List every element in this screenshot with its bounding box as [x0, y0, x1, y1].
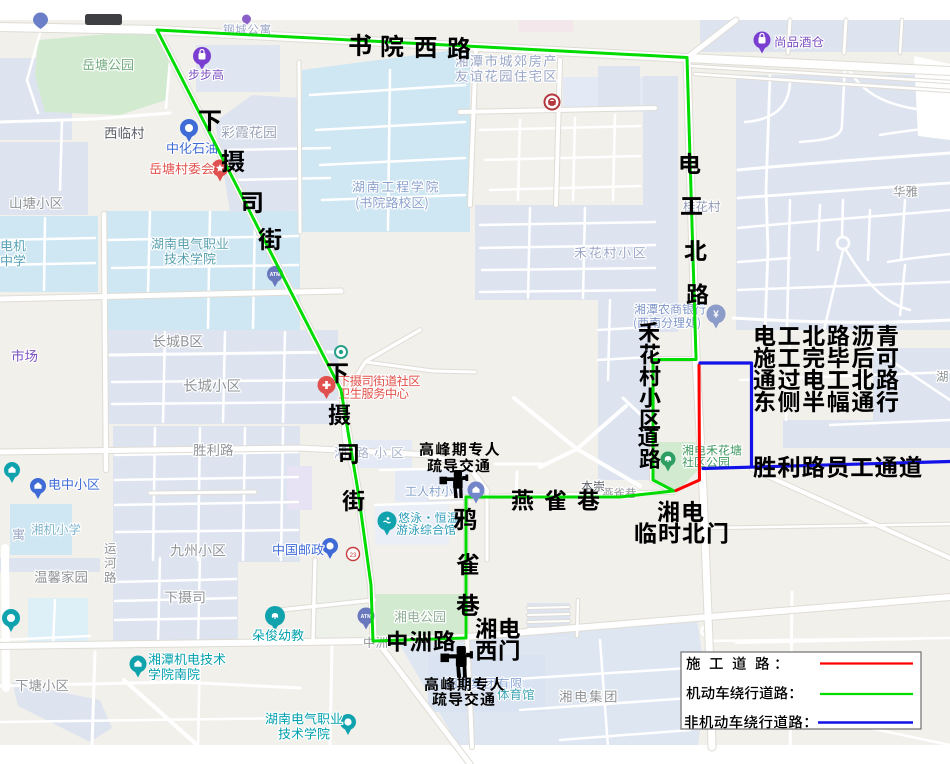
svg-text:ATM: ATM	[361, 614, 372, 620]
svg-text:ATM: ATM	[270, 272, 281, 278]
svg-text:¥: ¥	[713, 309, 719, 320]
svg-text:23: 23	[350, 553, 357, 559]
